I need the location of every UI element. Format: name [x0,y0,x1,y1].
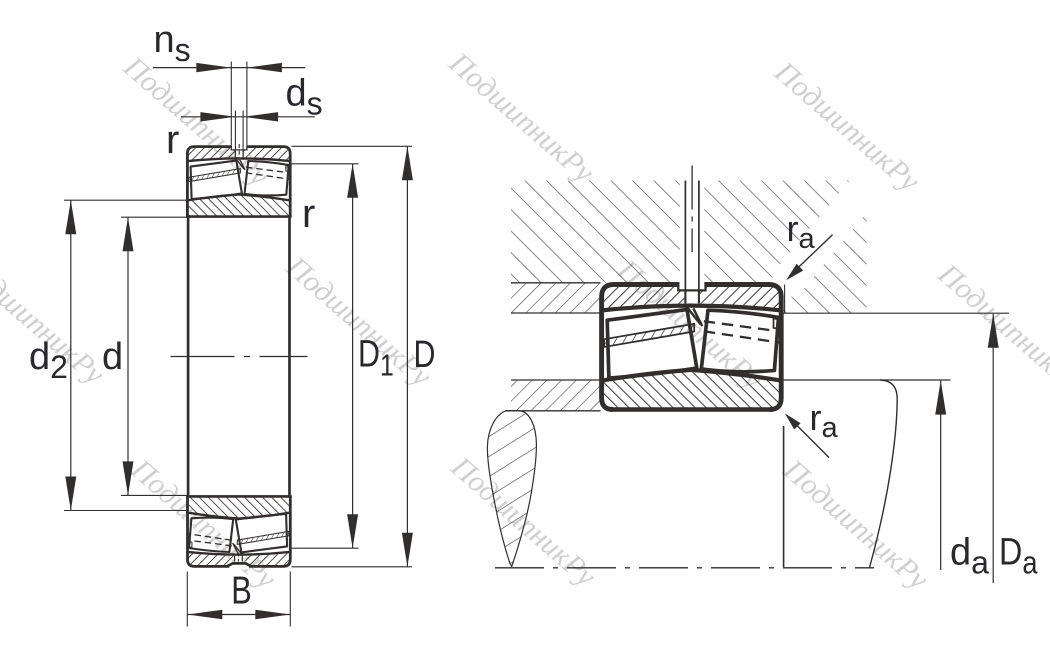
svg-text:d: d [102,336,123,378]
svg-text:r: r [302,192,315,236]
svg-text:D: D [414,334,436,376]
svg-text:B: B [231,569,252,612]
svg-text:r: r [166,118,179,162]
